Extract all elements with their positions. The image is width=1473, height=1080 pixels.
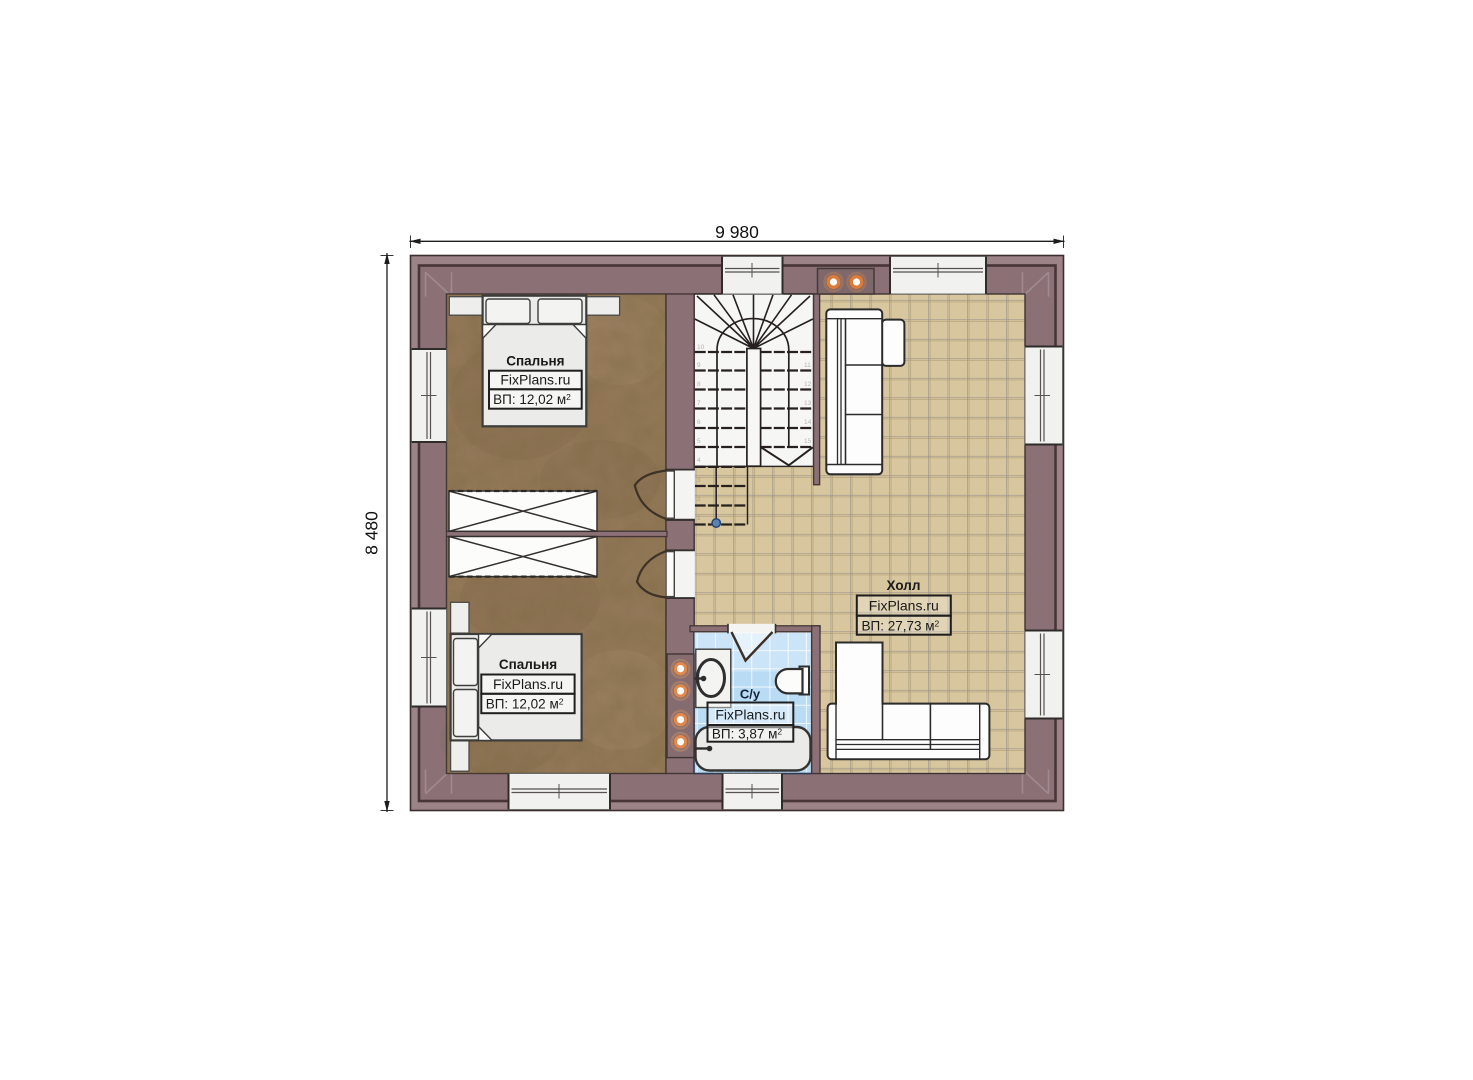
svg-text:3: 3 bbox=[697, 477, 701, 484]
svg-text:Холл: Холл bbox=[887, 578, 921, 593]
svg-text:15: 15 bbox=[804, 438, 812, 445]
svg-text:13: 13 bbox=[804, 400, 812, 407]
svg-text:14: 14 bbox=[804, 419, 812, 426]
svg-text:FixPlans.ru: FixPlans.ru bbox=[715, 707, 785, 723]
svg-text:7: 7 bbox=[697, 400, 701, 407]
svg-text:Спальня: Спальня bbox=[499, 657, 557, 672]
svg-text:ВП: 27,73 м2: ВП: 27,73 м2 bbox=[862, 618, 940, 633]
svg-text:FixPlans.ru: FixPlans.ru bbox=[493, 676, 563, 692]
svg-text:9: 9 bbox=[697, 362, 701, 369]
svg-text:8 480: 8 480 bbox=[362, 511, 382, 555]
svg-text:8: 8 bbox=[697, 381, 701, 388]
svg-text:10: 10 bbox=[697, 344, 705, 351]
svg-text:FixPlans.ru: FixPlans.ru bbox=[869, 598, 939, 614]
svg-text:12: 12 bbox=[804, 381, 812, 388]
svg-text:4: 4 bbox=[697, 457, 701, 464]
svg-text:ВП: 12,02 м2: ВП: 12,02 м2 bbox=[493, 392, 571, 407]
svg-text:1: 1 bbox=[697, 515, 701, 522]
svg-text:Спальня: Спальня bbox=[506, 354, 564, 369]
svg-text:5: 5 bbox=[697, 438, 701, 445]
svg-text:9 980: 9 980 bbox=[715, 222, 759, 242]
svg-text:6: 6 bbox=[697, 419, 701, 426]
svg-text:ВП: 12,02 м2: ВП: 12,02 м2 bbox=[486, 697, 564, 712]
svg-text:ВП: 3,87 м2: ВП: 3,87 м2 bbox=[712, 726, 783, 741]
svg-text:11: 11 bbox=[804, 362, 811, 369]
svg-text:С/у: С/у bbox=[740, 687, 761, 702]
svg-text:FixPlans.ru: FixPlans.ru bbox=[500, 372, 570, 388]
svg-text:2: 2 bbox=[697, 496, 701, 503]
